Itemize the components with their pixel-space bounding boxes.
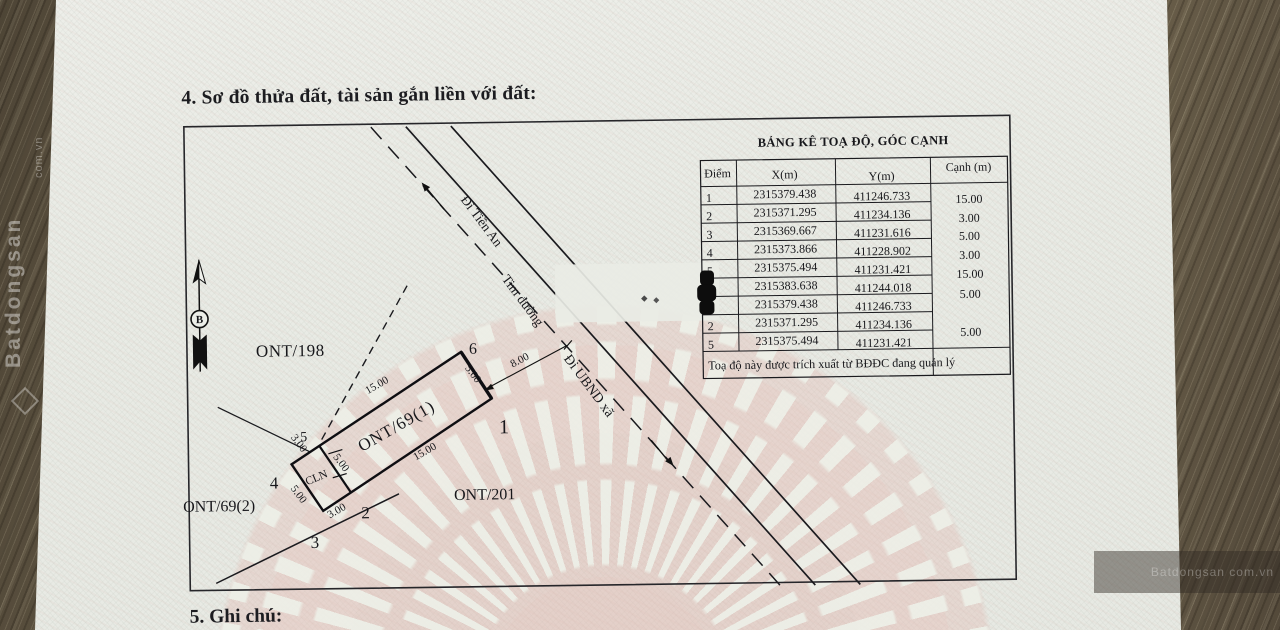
paper-edge-shading bbox=[0, 0, 1280, 630]
brand-watermark-band: Batdongsan com.vn bbox=[1094, 551, 1280, 593]
brand-watermark-vertical: Batdongsan bbox=[2, 48, 26, 368]
photo-of-land-document: 4. Sơ đồ thửa đất, tài sản gắn liền với … bbox=[0, 0, 1280, 630]
brand-watermark-suffix: com.vn bbox=[33, 58, 45, 178]
